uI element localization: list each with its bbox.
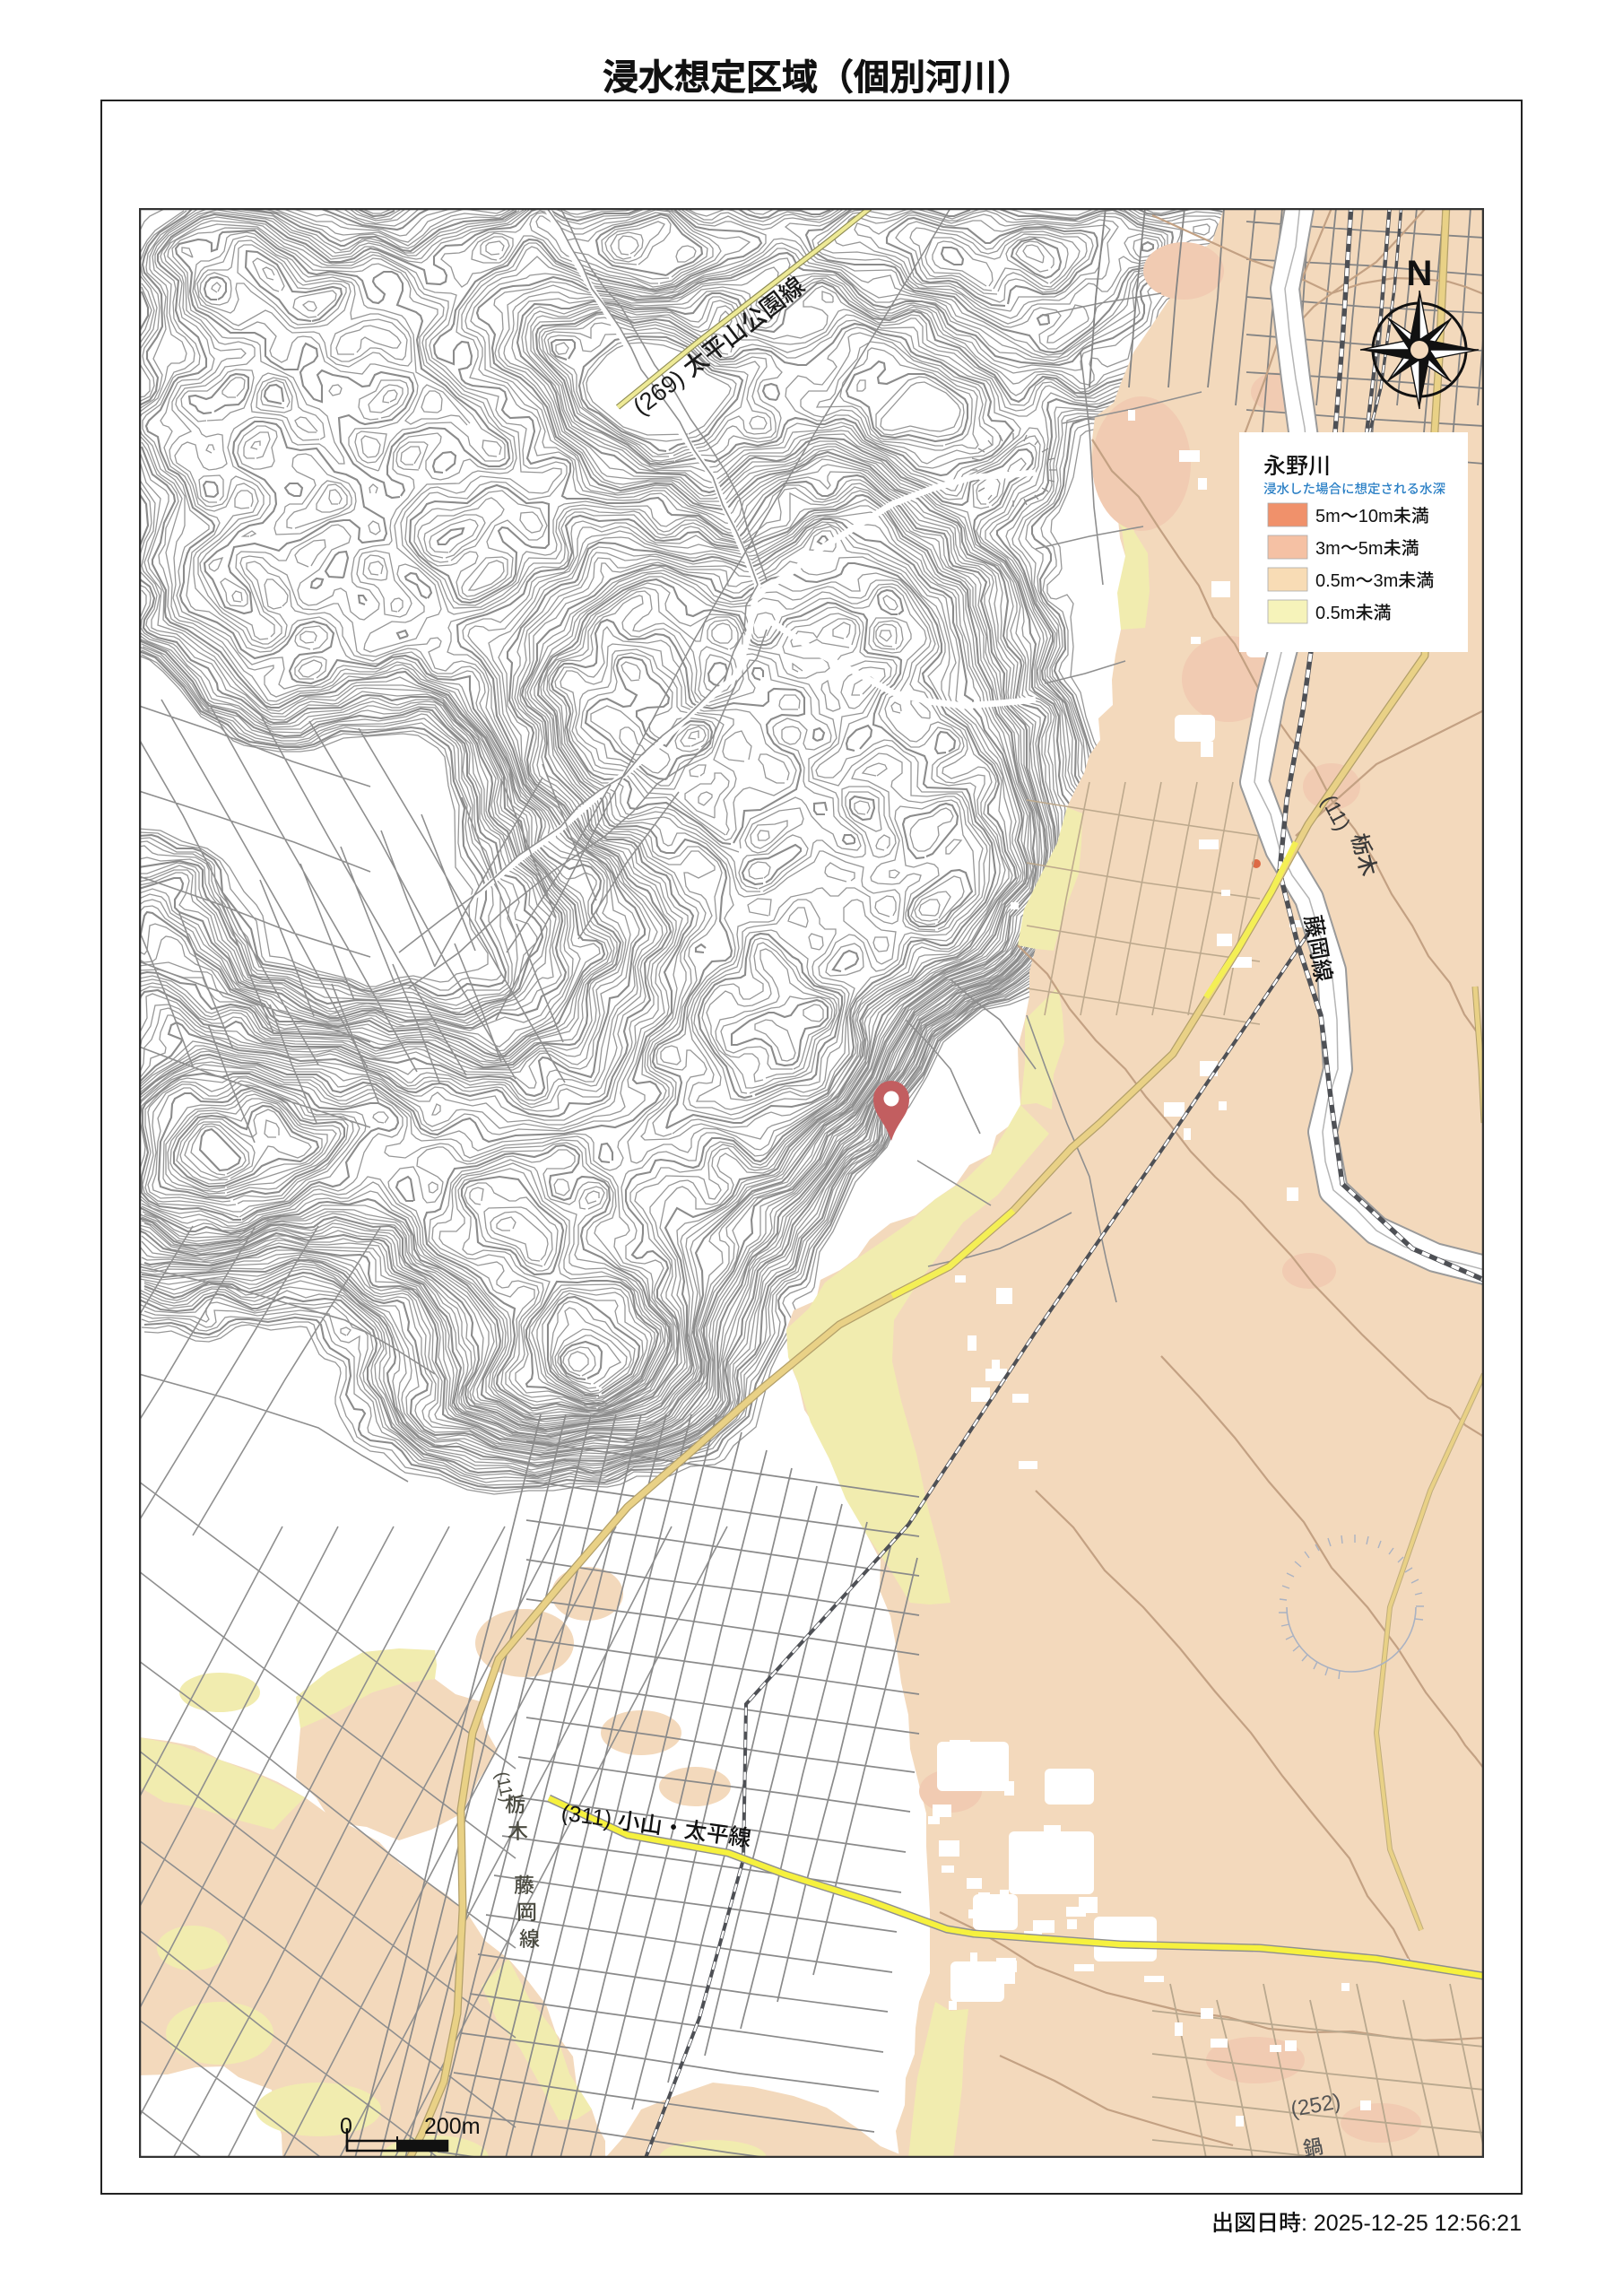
svg-text:藤: 藤 [514, 1874, 534, 1897]
svg-text:5m～10m未満: 5m～10m未満 [1315, 507, 1429, 526]
svg-text:線: 線 [519, 1927, 540, 1951]
svg-text:栃: 栃 [505, 1793, 525, 1816]
svg-text:鍋: 鍋 [1302, 2135, 1325, 2158]
svg-text:N: N [1407, 254, 1433, 293]
svg-text:永野川: 永野川 [1263, 454, 1331, 479]
svg-text:0.5m～3m未満: 0.5m～3m未満 [1315, 571, 1434, 591]
svg-text:木: 木 [508, 1820, 528, 1843]
svg-text:200m: 200m [424, 2114, 481, 2139]
svg-text:浸水した場合に想定される水深: 浸水した場合に想定される水深 [1263, 482, 1445, 497]
svg-text:0.5m未満: 0.5m未満 [1315, 604, 1391, 623]
svg-text:3m～5m未満: 3m～5m未満 [1315, 539, 1419, 559]
svg-text:0: 0 [340, 2114, 352, 2139]
svg-text:岡: 岡 [516, 1900, 537, 1924]
